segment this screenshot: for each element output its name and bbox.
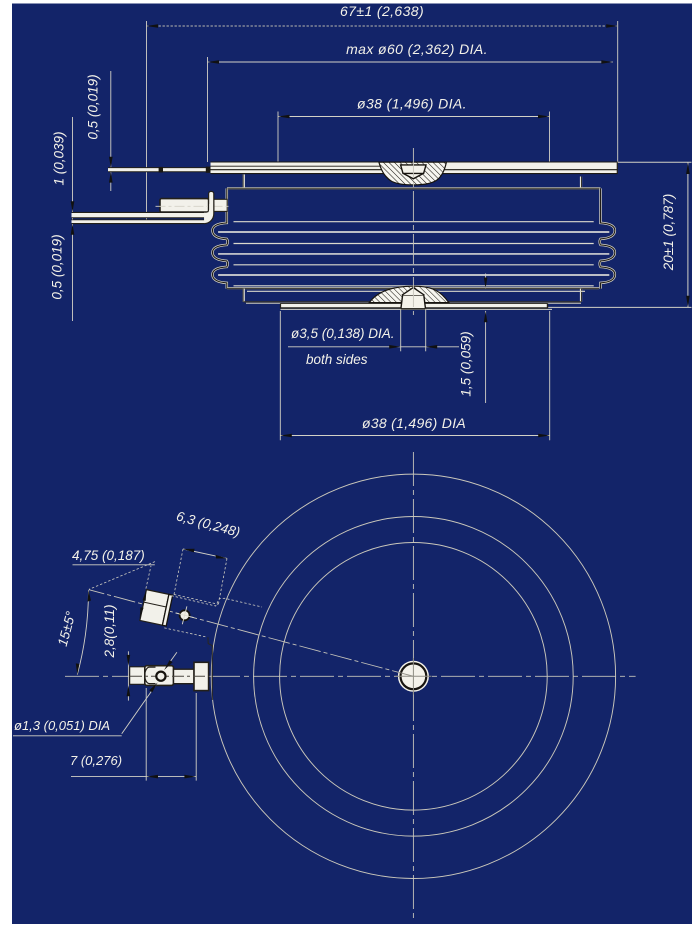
svg-text:ø38 (1,496) DIA.: ø38 (1,496) DIA. [357, 96, 467, 112]
svg-text:0,5 (0,019): 0,5 (0,019) [50, 234, 65, 299]
svg-text:1 (0,039): 1 (0,039) [52, 131, 67, 185]
svg-text:7 (0,276): 7 (0,276) [70, 753, 122, 768]
svg-text:ø1,3 (0,051) DIA: ø1,3 (0,051) DIA [14, 718, 110, 733]
svg-text:67±1 (2,638): 67±1 (2,638) [340, 3, 424, 19]
svg-text:4,75 (0,187): 4,75 (0,187) [72, 548, 145, 563]
svg-text:1,5 (0,059): 1,5 (0,059) [459, 331, 474, 396]
svg-text:max ø60 (2,362) DIA.: max ø60 (2,362) DIA. [346, 41, 488, 57]
svg-text:both sides: both sides [306, 352, 368, 367]
svg-text:20±1 (0,787): 20±1 (0,787) [661, 194, 676, 271]
svg-text:ø38 (1,496) DIA: ø38 (1,496) DIA [362, 415, 466, 431]
svg-text:0,5 (0,019): 0,5 (0,019) [86, 74, 101, 139]
svg-text:ø3,5 (0,138) DIA.: ø3,5 (0,138) DIA. [291, 326, 395, 341]
svg-text:2,8(0,11): 2,8(0,11) [102, 604, 117, 658]
